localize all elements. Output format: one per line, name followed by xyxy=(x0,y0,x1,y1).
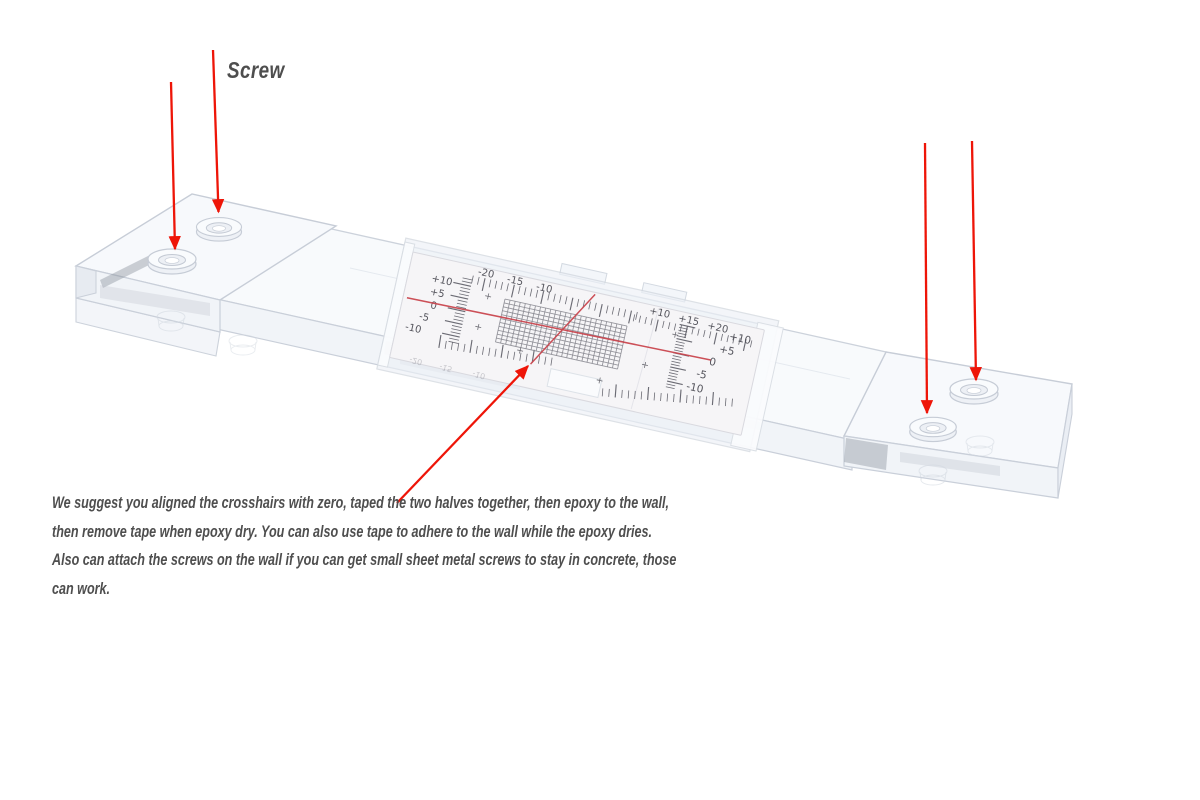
screw-post xyxy=(196,218,241,242)
diagram-canvas: -20 -15 -10 +10 +15 +20 +10 +5 0 -5 -10 … xyxy=(0,0,1200,800)
arrow-screw-right-outer xyxy=(972,141,976,380)
screw-shaft xyxy=(229,335,257,355)
instruction-line: then remove tape when epoxy dry. You can… xyxy=(52,518,777,547)
screw-post xyxy=(910,417,957,441)
left-block-end-face xyxy=(76,266,96,298)
instruction-line: can work. xyxy=(52,575,777,604)
crack-monitor-illustration: -20 -15 -10 +10 +15 +20 +10 +5 0 -5 -10 … xyxy=(0,0,1200,800)
arrow-screw-left-inner xyxy=(213,50,219,212)
screw-post xyxy=(148,249,196,274)
screw-label: Screw xyxy=(227,57,285,84)
instruction-line: We suggest you aligned the crosshairs wi… xyxy=(52,489,777,518)
instruction-text: We suggest you aligned the crosshairs wi… xyxy=(52,489,777,603)
screw-post xyxy=(950,379,998,404)
right-mount-block xyxy=(844,352,1072,498)
gauge-plate: -20 -15 -10 +10 +15 +20 +10 +5 0 -5 -10 … xyxy=(377,229,787,453)
instruction-line: Also can attach the screws on the wall i… xyxy=(52,546,777,575)
